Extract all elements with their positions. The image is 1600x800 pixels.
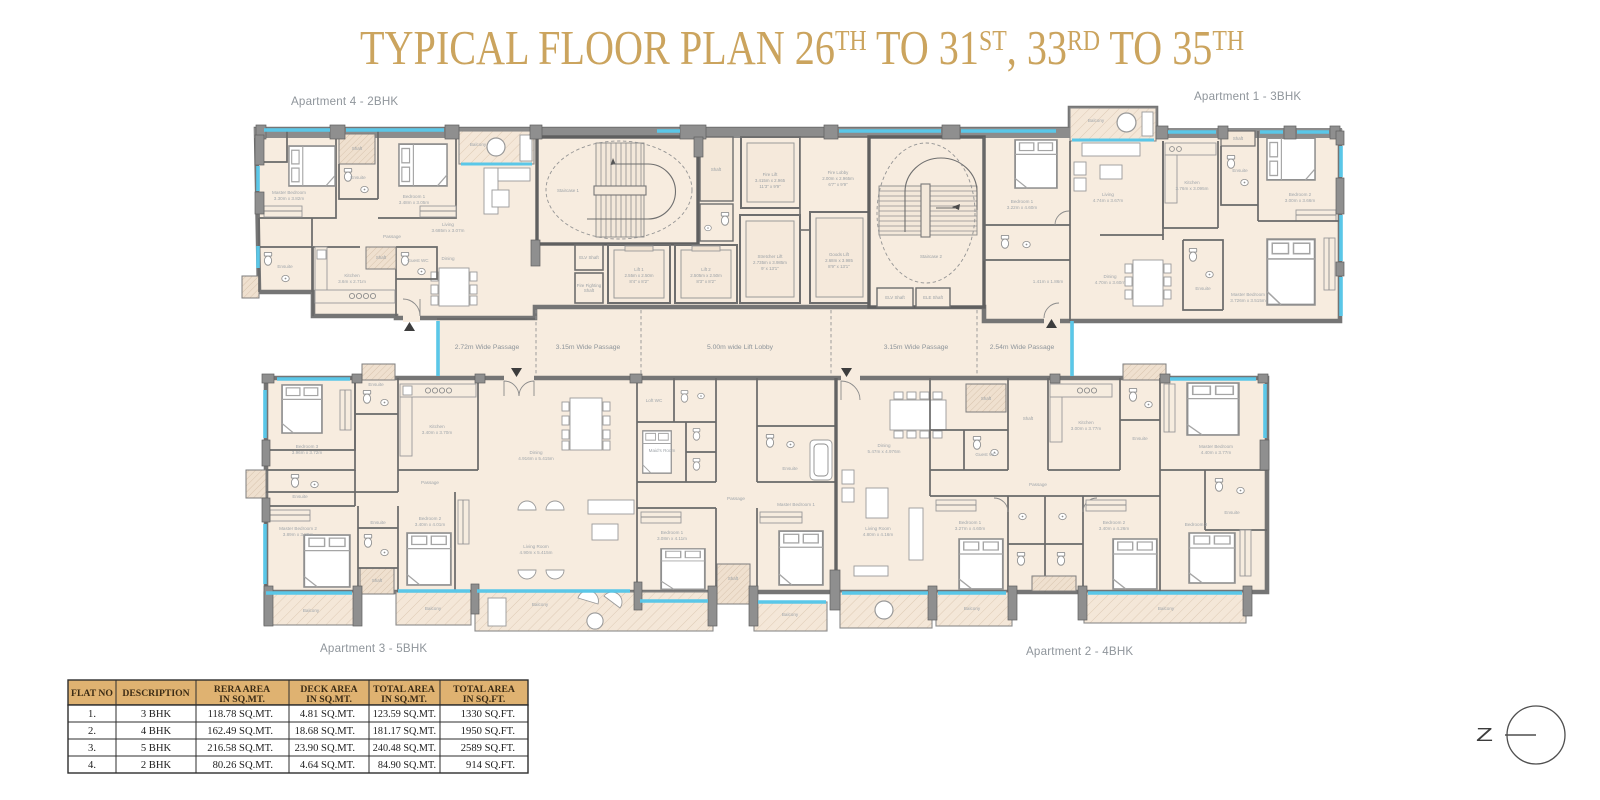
svg-text:Shaft: Shaft: [1233, 136, 1244, 141]
svg-text:3 BHK: 3 BHK: [141, 709, 172, 720]
svg-text:Maid's Room: Maid's Room: [649, 448, 676, 453]
svg-text:Guest WC: Guest WC: [407, 258, 429, 263]
svg-text:3.6m x 2.71m: 3.6m x 2.71m: [338, 279, 366, 284]
svg-text:3.15m Wide Passage: 3.15m Wide Passage: [556, 344, 621, 351]
svg-text:Kitchen: Kitchen: [344, 273, 360, 278]
svg-text:3.22m x 4.60m: 3.22m x 4.60m: [1007, 205, 1038, 210]
svg-text:Apartment 4 - 2BHK: Apartment 4 - 2BHK: [291, 95, 398, 108]
svg-text:Passage: Passage: [727, 496, 745, 501]
svg-text:Apartment 2 - 4BHK: Apartment 2 - 4BHK: [1026, 645, 1133, 658]
svg-text:80.26 SQ.MT.: 80.26 SQ.MT.: [213, 760, 273, 771]
svg-text:Shaft: Shaft: [1023, 416, 1034, 421]
svg-text:3.40m x 4.01m: 3.40m x 4.01m: [415, 522, 446, 527]
svg-text:Balcony: Balcony: [470, 142, 487, 147]
svg-text:Passage: Passage: [421, 480, 439, 485]
svg-text:2.68m x 3.985: 2.68m x 3.985: [825, 258, 853, 263]
svg-text:Bedroom 3: Bedroom 3: [1185, 522, 1208, 527]
svg-text:Shaft: Shaft: [352, 146, 363, 151]
svg-text:Master Bedroom: Master Bedroom: [1199, 444, 1233, 449]
svg-text:4 BHK: 4 BHK: [141, 726, 172, 737]
svg-text:3.76m x 3.095m: 3.76m x 3.095m: [1176, 186, 1209, 191]
svg-text:3.685m x 3.07m: 3.685m x 3.07m: [432, 228, 465, 233]
svg-text:2.00m x 2.965m: 2.00m x 2.965m: [822, 176, 854, 181]
svg-text:3.30m x 3.82m: 3.30m x 3.82m: [274, 196, 305, 201]
svg-text:Bedroom 2: Bedroom 2: [419, 516, 442, 521]
svg-text:Lift 1: Lift 1: [634, 267, 644, 272]
svg-text:4.90m x 5.415m: 4.90m x 5.415m: [520, 550, 553, 555]
svg-text:Stretcher Lift: Stretcher Lift: [758, 254, 784, 259]
svg-text:Kitchen: Kitchen: [1184, 180, 1200, 185]
svg-text:Fire Lift: Fire Lift: [763, 172, 778, 177]
svg-text:Balcony: Balcony: [303, 608, 320, 613]
svg-text:IN SQ.MT.: IN SQ.MT.: [219, 694, 265, 705]
svg-text:Ensuite: Ensuite: [782, 466, 798, 471]
svg-text:Ensuite: Ensuite: [1195, 286, 1211, 291]
svg-text:Living Room: Living Room: [523, 544, 549, 549]
svg-text:6'7" x 9'9": 6'7" x 9'9": [828, 182, 848, 187]
svg-text:3.726m x 3.515m: 3.726m x 3.515m: [1230, 298, 1266, 303]
svg-text:Ensuite: Ensuite: [370, 520, 386, 525]
svg-text:Dining: Dining: [1103, 274, 1116, 279]
svg-text:Bedroom 1: Bedroom 1: [1011, 199, 1034, 204]
svg-text:123.59 SQ.MT.: 123.59 SQ.MT.: [373, 709, 436, 720]
svg-text:Ensuite: Ensuite: [292, 494, 308, 499]
svg-text:Master Bedroom 1: Master Bedroom 1: [777, 502, 815, 507]
svg-text:4.: 4.: [88, 760, 96, 771]
svg-text:Shaft: Shaft: [376, 255, 387, 260]
svg-text:Master Bedroom: Master Bedroom: [1231, 292, 1265, 297]
svg-text:Staircase 1: Staircase 1: [557, 188, 580, 193]
svg-text:Balcony: Balcony: [782, 612, 799, 617]
svg-text:Passage: Passage: [383, 234, 401, 239]
svg-text:IN SQ.MT.: IN SQ.MT.: [306, 694, 352, 705]
svg-text:Apartment 1 - 3BHK: Apartment 1 - 3BHK: [1194, 90, 1301, 103]
svg-text:Balcony: Balcony: [425, 606, 442, 611]
svg-text:Kitchen: Kitchen: [429, 424, 445, 429]
svg-text:Bedroom 2: Bedroom 2: [1103, 520, 1126, 525]
svg-text:1950 SQ.FT.: 1950 SQ.FT.: [461, 726, 515, 737]
svg-text:1.41m x 1.86m: 1.41m x 1.86m: [1033, 279, 1064, 284]
svg-text:Dining: Dining: [529, 450, 542, 455]
svg-text:3.27m x 4.60m: 3.27m x 4.60m: [955, 526, 986, 531]
svg-text:Living Room: Living Room: [865, 526, 891, 531]
svg-text:Balcony: Balcony: [1158, 606, 1175, 611]
svg-text:Ensuite: Ensuite: [277, 264, 293, 269]
svg-text:Master Bedroom: Master Bedroom: [272, 190, 306, 195]
svg-text:Apartment 3 - 5BHK: Apartment 3 - 5BHK: [320, 642, 427, 655]
svg-text:3.96m x 3.72m: 3.96m x 3.72m: [292, 450, 323, 455]
svg-text:TYPICAL FLOOR PLAN 26TH TO 31: TYPICAL FLOOR PLAN 26TH TO 31ST, 33RD TO…: [360, 20, 1244, 75]
svg-text:181.17 SQ.MT.: 181.17 SQ.MT.: [373, 726, 436, 737]
svg-text:Ensuite: Ensuite: [368, 382, 384, 387]
svg-text:Goods Lift: Goods Lift: [829, 252, 850, 257]
svg-text:Shaft: Shaft: [728, 576, 739, 581]
svg-text:Lift 2: Lift 2: [701, 267, 711, 272]
svg-text:4.64 SQ.MT.: 4.64 SQ.MT.: [300, 760, 355, 771]
svg-text:4.81 SQ.MT.: 4.81 SQ.MT.: [300, 709, 355, 720]
svg-text:2.505m x 2.50m: 2.505m x 2.50m: [690, 273, 722, 278]
svg-text:Loft WC: Loft WC: [646, 398, 663, 403]
svg-text:2589 SQ.FT.: 2589 SQ.FT.: [461, 743, 515, 754]
svg-text:23.90 SQ.MT.: 23.90 SQ.MT.: [295, 743, 355, 754]
svg-text:Shaft: Shaft: [981, 396, 992, 401]
svg-text:Fire Lobby: Fire Lobby: [828, 170, 850, 175]
svg-text:FLAT NO: FLAT NO: [71, 688, 113, 699]
svg-text:4.74m x 3.67m: 4.74m x 3.67m: [1093, 198, 1124, 203]
svg-text:3.15m Wide Passage: 3.15m Wide Passage: [884, 344, 949, 351]
svg-text:Ensuite: Ensuite: [350, 175, 366, 180]
svg-text:84.90 SQ.MT.: 84.90 SQ.MT.: [378, 760, 436, 771]
svg-text:ELE Shaft: ELE Shaft: [923, 295, 944, 300]
svg-text:Living: Living: [442, 222, 454, 227]
svg-text:8'9" x 13'1": 8'9" x 13'1": [828, 264, 850, 269]
svg-text:216.58 SQ.MT.: 216.58 SQ.MT.: [207, 743, 273, 754]
svg-text:3.40m x 3.70m: 3.40m x 3.70m: [422, 430, 453, 435]
svg-text:3.00m x 3.77m: 3.00m x 3.77m: [1071, 426, 1102, 431]
svg-text:4.40m x 3.77m: 4.40m x 3.77m: [1201, 450, 1232, 455]
svg-text:Shaft: Shaft: [711, 167, 722, 172]
svg-text:DESCRIPTION: DESCRIPTION: [122, 688, 189, 699]
svg-text:Z: Z: [1476, 725, 1493, 745]
svg-text:3.48m x 3.05m: 3.48m x 3.05m: [399, 200, 430, 205]
svg-text:162.49 SQ.MT.: 162.49 SQ.MT.: [207, 726, 273, 737]
svg-text:Dining: Dining: [877, 443, 890, 448]
svg-text:4.70m x 3.60m: 4.70m x 3.60m: [1095, 280, 1126, 285]
svg-text:5.00m wide Lift Lobby: 5.00m wide Lift Lobby: [707, 344, 774, 351]
svg-text:11'3" x 9'9": 11'3" x 9'9": [759, 184, 781, 189]
svg-text:Balcony: Balcony: [532, 602, 549, 607]
svg-text:5 BHK: 5 BHK: [141, 743, 172, 754]
svg-text:8'4" x 8'2": 8'4" x 8'2": [629, 279, 649, 284]
svg-text:Bedroom 1: Bedroom 1: [959, 520, 982, 525]
svg-text:4.80m x 4.16m: 4.80m x 4.16m: [863, 532, 894, 537]
svg-text:Master Bedroom 2: Master Bedroom 2: [279, 526, 317, 531]
svg-text:914 SQ.FT.: 914 SQ.FT.: [466, 760, 515, 771]
svg-text:Shaft: Shaft: [372, 578, 383, 583]
svg-text:1330 SQ.FT.: 1330 SQ.FT.: [461, 709, 515, 720]
svg-text:2.735m x 3.985m: 2.735m x 3.985m: [753, 260, 787, 265]
svg-text:Bedroom 3: Bedroom 3: [296, 444, 319, 449]
svg-text:3.: 3.: [88, 743, 96, 754]
svg-text:Balcony: Balcony: [1088, 118, 1105, 123]
svg-text:Ensuite: Ensuite: [1132, 436, 1148, 441]
svg-text:118.78 SQ.MT.: 118.78 SQ.MT.: [208, 709, 273, 720]
svg-text:Bedroom 1: Bedroom 1: [403, 194, 426, 199]
svg-text:5.47m x 4.976m: 5.47m x 4.976m: [868, 449, 901, 454]
svg-text:3.00m x 3.66m: 3.00m x 3.66m: [1285, 198, 1316, 203]
svg-text:Ensuite: Ensuite: [1232, 168, 1248, 173]
svg-text:8'3" x 8'2": 8'3" x 8'2": [696, 279, 716, 284]
svg-text:IN SQ.FT.: IN SQ.FT.: [463, 694, 506, 705]
svg-text:Bedroom 1: Bedroom 1: [661, 530, 684, 535]
svg-text:2.54m Wide Passage: 2.54m Wide Passage: [990, 344, 1055, 351]
svg-text:2 BHK: 2 BHK: [141, 760, 172, 771]
svg-text:Dining: Dining: [441, 256, 454, 261]
svg-text:3.89m x 3.89m: 3.89m x 3.89m: [283, 532, 314, 537]
svg-text:Staircase 2: Staircase 2: [920, 254, 943, 259]
svg-text:Ensuite: Ensuite: [1224, 510, 1240, 515]
svg-text:3.08m x 4.11m: 3.08m x 4.11m: [657, 536, 687, 541]
svg-text:ELV Shaft: ELV Shaft: [885, 295, 905, 300]
svg-text:4.916m x 5.415m: 4.916m x 5.415m: [518, 456, 554, 461]
svg-text:3.40m x 4.26m: 3.40m x 4.26m: [1099, 526, 1130, 531]
svg-text:2.55m x 2.50m: 2.55m x 2.50m: [624, 273, 653, 278]
svg-text:Bedroom 2: Bedroom 2: [1289, 192, 1312, 197]
svg-text:IN SQ.MT.: IN SQ.MT.: [381, 694, 427, 705]
svg-text:Kitchen: Kitchen: [1078, 420, 1094, 425]
svg-text:Passage: Passage: [1029, 482, 1047, 487]
svg-text:Balcony: Balcony: [964, 606, 981, 611]
svg-text:3.415m x 2.965: 3.415m x 2.965: [755, 178, 786, 183]
svg-text:9' x 13'1": 9' x 13'1": [761, 266, 779, 271]
svg-text:Guest WC: Guest WC: [975, 452, 997, 457]
svg-text:ELV Shaft: ELV Shaft: [579, 255, 599, 260]
svg-text:Living: Living: [1102, 192, 1114, 197]
svg-text:Shaft: Shaft: [584, 288, 595, 293]
svg-text:1.: 1.: [88, 709, 96, 720]
svg-text:2.: 2.: [88, 726, 96, 737]
svg-text:18.68 SQ.MT.: 18.68 SQ.MT.: [295, 726, 355, 737]
svg-text:2.72m Wide Passage: 2.72m Wide Passage: [455, 344, 520, 351]
svg-text:240.48 SQ.MT.: 240.48 SQ.MT.: [373, 743, 436, 754]
